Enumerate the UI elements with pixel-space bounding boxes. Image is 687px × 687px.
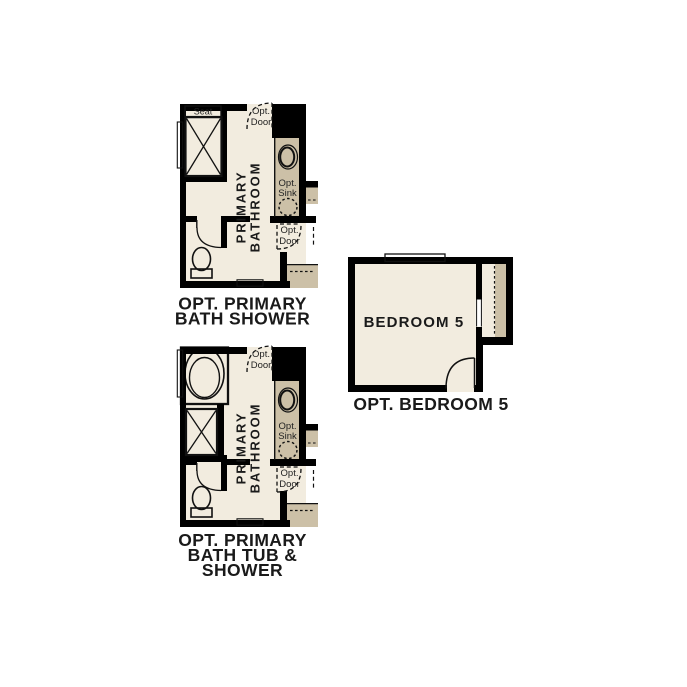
closet-floor [287, 264, 318, 288]
wall-segment [180, 281, 290, 288]
wall-segment [476, 345, 483, 392]
seat-label: Seat [194, 107, 213, 117]
wall-segment [506, 257, 513, 345]
wall-segment [299, 138, 306, 222]
plan-caption: SHOWER [202, 560, 283, 580]
opt-sink-label: Sink [278, 188, 297, 199]
opt-door-label: Opt. [281, 468, 299, 479]
wall-segment [180, 347, 247, 354]
wall-segment [348, 385, 447, 392]
adjacent-wall-notch [306, 424, 318, 447]
plan-caption: BATH SHOWER [175, 309, 310, 329]
room-name: PRIMARY [234, 171, 249, 244]
wall-segment [272, 347, 306, 381]
closet-opening [476, 300, 482, 327]
wall-segment [270, 459, 316, 466]
optional-door-side: Opt. Door [277, 224, 314, 249]
wall-segment [299, 381, 306, 465]
wall-segment [272, 104, 306, 138]
opt-door-label: Opt. [281, 225, 299, 236]
wall-segment [180, 459, 197, 465]
opt-door-label: Door [279, 236, 300, 247]
wall-segment [280, 491, 287, 527]
wall-segment [180, 520, 290, 527]
plan-opt-primary-bath-shower: Seat Opt. Door [175, 103, 318, 329]
opt-door-label: Door [251, 360, 272, 371]
adjacent-wall-notch [306, 181, 318, 204]
opt-door-label: Opt. [252, 106, 270, 117]
opt-door-label: Opt. [252, 349, 270, 360]
wall-segment [221, 216, 227, 248]
wall-segment [180, 216, 197, 222]
wall-segment [476, 264, 482, 300]
plan-opt-primary-bath-tub-shower: Opt. Door Opt. Door Opt. Sink PRIMARY BA… [177, 346, 318, 580]
opt-sink-label: Sink [278, 431, 297, 442]
room-name: BATHROOM [248, 162, 263, 253]
wall-segment [348, 257, 355, 392]
wall-segment [348, 257, 513, 264]
wall-segment [270, 216, 316, 223]
wall-segment [280, 252, 287, 288]
plan-caption: OPT. BEDROOM 5 [353, 394, 508, 414]
opt-door-label: Door [251, 117, 272, 128]
wall-segment [221, 459, 227, 491]
adjacent-floor [306, 188, 318, 205]
closet-floor [287, 503, 318, 527]
plan-opt-bedroom-5: BEDROOM 5 OPT. BEDROOM 5 [348, 254, 513, 414]
wall-segment [180, 104, 247, 111]
floorplan-options-page: Seat Opt. Door [0, 0, 687, 687]
floorplan-diagram: Seat Opt. Door [0, 0, 687, 687]
wall-segment [306, 424, 318, 431]
wall-segment [306, 181, 318, 188]
optional-door-side: Opt. Door [277, 467, 314, 492]
adjacent-floor [306, 431, 318, 448]
room-name: PRIMARY [234, 412, 249, 485]
opt-door-label: Door [279, 479, 300, 490]
room-name: BEDROOM 5 [364, 314, 465, 331]
closet-shelf [495, 264, 506, 337]
room-name: BATHROOM [248, 403, 263, 494]
